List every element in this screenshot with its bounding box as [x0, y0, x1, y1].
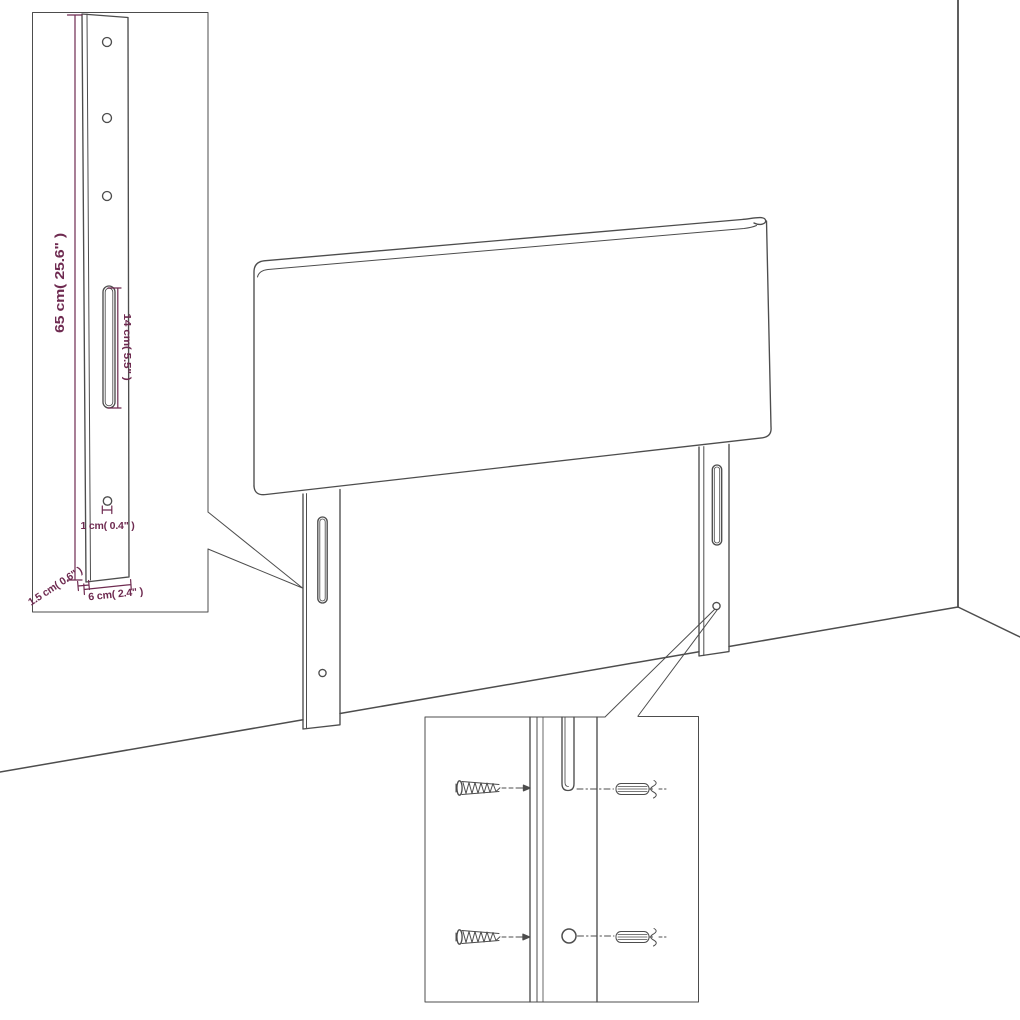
- slot-detail-inner: [565, 717, 569, 787]
- dim-leg-thickness-label: 1.5 cm( 0.6" ): [26, 565, 85, 609]
- right-leg-hole: [713, 602, 720, 609]
- dim-hole-line: [102, 506, 112, 514]
- hole-detail: [562, 929, 576, 943]
- right-leg-slot: [712, 465, 721, 545]
- dim-hole-diameter-label: 1 cm( 0.4" ): [81, 520, 135, 532]
- dimension-lines: [68, 15, 132, 595]
- left-leg: [303, 490, 340, 729]
- bracket-hole-2: [103, 114, 112, 123]
- line-art: [0, 0, 1020, 1002]
- bracket-slot-inner: [105, 288, 113, 406]
- left-leg-outline: [303, 490, 340, 729]
- dim-slot-length-label: 14 cm( 5.5" ): [121, 314, 133, 381]
- callout-lines: [208, 512, 718, 717]
- arrowhead-bottom: [523, 934, 530, 940]
- hardware-detail-callout: [605, 610, 718, 718]
- arrowhead-top: [524, 785, 531, 791]
- bracket-hole-3: [103, 192, 112, 201]
- dim-height-line: [68, 15, 83, 580]
- left-leg-hole: [319, 669, 326, 676]
- dim-height-label: 65 cm( 25.6" ): [53, 233, 67, 333]
- room-corner: [0, 0, 1020, 772]
- floor-edge-left: [0, 607, 958, 772]
- product-dimension-diagram: 65 cm( 25.6" ) 14 cm( 5.5" ) 1 cm( 0.4" …: [0, 0, 1020, 1020]
- panel-body-outline: [254, 221, 771, 495]
- right-leg-slot-inner: [714, 467, 719, 543]
- hardware-detail-inset: [425, 717, 699, 1003]
- leg-face-lines: [530, 717, 597, 1002]
- alignment-lines: [502, 785, 666, 940]
- diagram-canvas: 65 cm( 25.6" ) 14 cm( 5.5" ) 1 cm( 0.4" …: [0, 0, 1020, 1020]
- left-leg-slot: [318, 517, 327, 603]
- leg-detail-callout: [208, 512, 303, 588]
- bracket-small-hole: [103, 497, 111, 505]
- screw-icon-bottom: [456, 930, 500, 944]
- slot-detail: [562, 717, 574, 791]
- floor-edge-right: [958, 607, 1020, 637]
- panel-top-inner-line: [258, 226, 757, 278]
- bracket-hole-1: [103, 38, 112, 47]
- bracket-edge-line: [87, 14, 91, 580]
- left-leg-slot-inner: [320, 519, 325, 601]
- right-leg: [699, 444, 729, 656]
- screw-icon-top: [456, 781, 500, 795]
- headboard-panel: [254, 218, 771, 495]
